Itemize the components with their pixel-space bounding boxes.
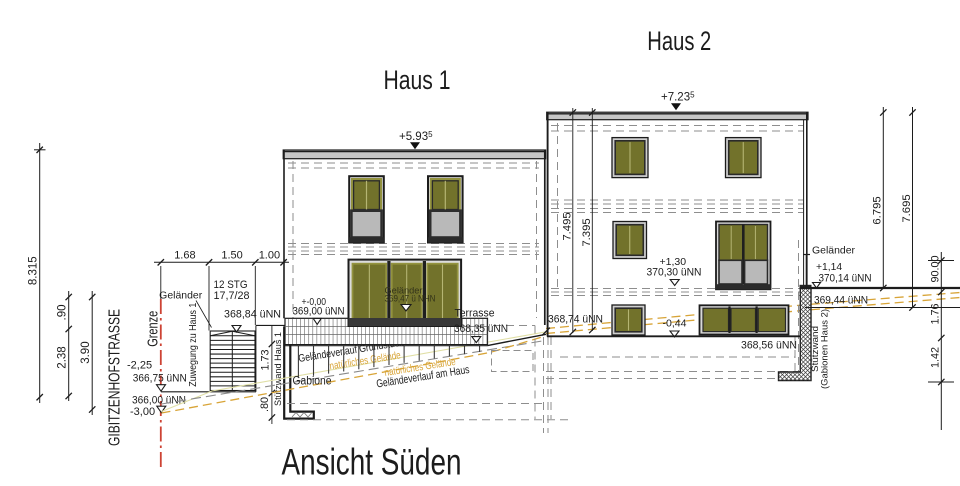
svg-text:.80: .80 xyxy=(259,397,271,412)
svg-text:2.38: 2.38 xyxy=(57,346,69,368)
svg-text:Ansicht Süden: Ansicht Süden xyxy=(282,442,462,483)
svg-text:Haus 2: Haus 2 xyxy=(647,26,711,56)
svg-text:1.00: 1.00 xyxy=(259,250,280,262)
svg-text:1.76: 1.76 xyxy=(930,303,942,324)
svg-text:-3,00: -3,00 xyxy=(130,406,155,418)
svg-text:GIBITZENHOFSTRASSE: GIBITZENHOFSTRASSE xyxy=(107,309,124,446)
svg-text:3.90: 3.90 xyxy=(80,341,92,363)
svg-text:366,75 üNN: 366,75 üNN xyxy=(133,373,187,385)
svg-text:1.42: 1.42 xyxy=(930,347,942,368)
svg-text:370,14 üNN: 370,14 üNN xyxy=(819,273,872,285)
svg-text:+1,14: +1,14 xyxy=(816,262,842,273)
svg-text:-0,44: -0,44 xyxy=(663,318,687,330)
svg-text:6.795: 6.795 xyxy=(872,196,884,224)
svg-text:Geländer: Geländer xyxy=(159,291,203,302)
svg-text:1.68: 1.68 xyxy=(174,250,195,262)
svg-text:369,47 ü NHN: 369,47 ü NHN xyxy=(385,294,436,304)
svg-text:Geländer: Geländer xyxy=(812,246,856,257)
svg-text:370,30 üNN: 370,30 üNN xyxy=(647,267,702,279)
svg-text:+7.235: +7.235 xyxy=(661,91,695,104)
svg-text:368,35 üNN: 368,35 üNN xyxy=(454,323,508,335)
svg-text:Zuwegung zu Haus 1: Zuwegung zu Haus 1 xyxy=(188,302,199,386)
svg-text:1.50: 1.50 xyxy=(221,250,242,262)
svg-text:Haus 1: Haus 1 xyxy=(384,65,451,95)
svg-text:Terrasse: Terrasse xyxy=(455,308,495,320)
svg-text:369,00 üNN: 369,00 üNN xyxy=(293,306,345,318)
svg-text:7.395: 7.395 xyxy=(581,218,593,246)
svg-text:(Gabionen Haus 2): (Gabionen Haus 2) xyxy=(820,309,830,389)
svg-text:369,44 üNN: 369,44 üNN xyxy=(814,295,868,307)
svg-text:7.695: 7.695 xyxy=(901,194,913,222)
svg-text:Stützwand Haus 1: Stützwand Haus 1 xyxy=(273,332,283,406)
svg-text:+5.935: +5.935 xyxy=(399,130,433,143)
svg-text:-2,25: -2,25 xyxy=(127,360,152,372)
svg-text:Grenze: Grenze xyxy=(146,311,162,347)
svg-text:7.495: 7.495 xyxy=(562,212,574,240)
svg-text:90.00: 90.00 xyxy=(930,255,942,282)
svg-text:368,84 üNN: 368,84 üNN xyxy=(224,309,281,321)
svg-text:8.315: 8.315 xyxy=(28,256,40,285)
svg-text:368,56 üNN: 368,56 üNN xyxy=(741,340,797,352)
svg-text:Stützwand: Stützwand xyxy=(810,326,820,372)
svg-text:368,74 üNN: 368,74 üNN xyxy=(548,314,603,326)
svg-text:.90: .90 xyxy=(57,305,69,321)
svg-text:17,7/28: 17,7/28 xyxy=(214,290,250,302)
svg-text:1.73: 1.73 xyxy=(260,349,272,370)
